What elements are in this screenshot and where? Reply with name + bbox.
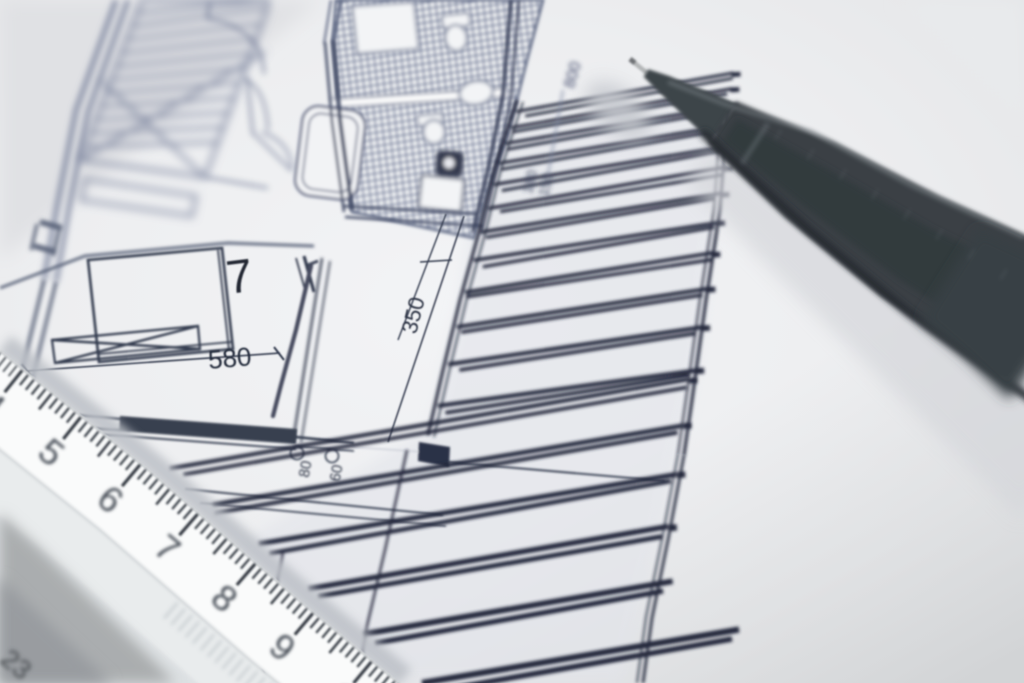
svg-text:80: 80 — [296, 459, 316, 478]
svg-text:580: 580 — [207, 341, 253, 375]
svg-text:60: 60 — [327, 463, 347, 482]
